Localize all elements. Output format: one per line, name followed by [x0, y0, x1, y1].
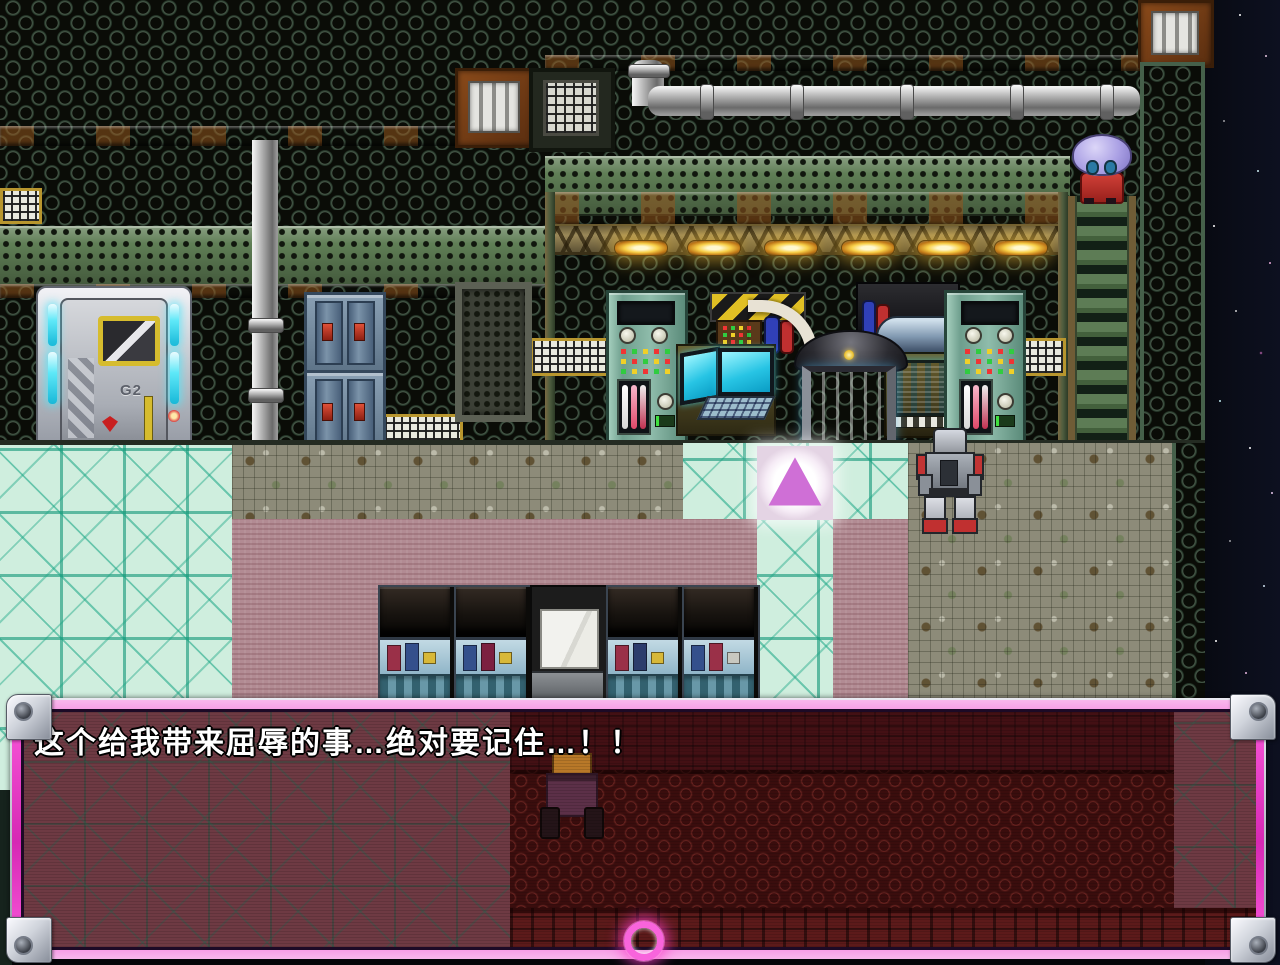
bracket-hole-icon	[14, 936, 33, 955]
vending-machine	[606, 585, 684, 704]
steam-pipe	[648, 86, 1140, 116]
door-light-right	[170, 304, 179, 346]
garage-pillar	[545, 192, 555, 458]
ceiling-light	[917, 240, 971, 256]
vending-top	[456, 587, 526, 637]
door-light-right	[170, 352, 179, 404]
robot-boot	[952, 518, 978, 534]
girl-hair	[1072, 134, 1132, 176]
cabinet-gauge	[965, 327, 982, 344]
mesh-panel	[1140, 62, 1205, 458]
girl-shoe	[1084, 198, 1094, 204]
wall-grate	[0, 188, 42, 224]
sci-fi-door: G2	[36, 286, 192, 462]
specimen-tubes	[959, 379, 993, 435]
robot-npc	[916, 428, 980, 532]
dialog-honeycomb-wall	[510, 770, 1174, 912]
pipe-coupling	[248, 388, 284, 403]
door-yellow-strip	[144, 396, 153, 442]
vending-item	[633, 643, 647, 671]
robot-boot	[922, 518, 948, 534]
robot-arm	[967, 474, 982, 496]
vending-item	[691, 645, 705, 671]
tube	[982, 385, 988, 429]
tube	[640, 385, 646, 429]
crate-handle	[322, 403, 333, 421]
cabinet-gauge	[651, 327, 668, 344]
cabinet-leds	[621, 349, 626, 354]
vent-box	[455, 68, 535, 148]
garage-beam	[545, 192, 1065, 226]
corner-bracket-tl	[6, 694, 52, 740]
dialog-brick-band	[510, 908, 1256, 947]
teleport-triangle-icon	[765, 454, 825, 510]
door-light-left	[48, 304, 57, 346]
vending-top	[380, 587, 450, 637]
pipe-coupling	[1100, 84, 1114, 120]
reactor-tank	[802, 366, 896, 446]
cart-wheel	[584, 807, 604, 839]
vending-item	[405, 643, 419, 671]
ladder	[1068, 196, 1136, 458]
vending-shelf	[684, 674, 754, 700]
dialogue-content: 这个给我带来屈辱的事…绝对要记住…！！	[24, 712, 1256, 947]
dialogue-frame: 这个给我带来屈辱的事…绝对要记住…！！	[12, 700, 1264, 959]
cabinet-gauge	[657, 393, 674, 410]
vending-item	[615, 645, 629, 671]
vending-item	[481, 643, 495, 671]
floor-mauve	[833, 519, 908, 700]
cart-wheel	[540, 807, 560, 839]
vending-machine	[378, 585, 456, 704]
tube	[622, 385, 628, 429]
crate-handle	[354, 323, 365, 341]
tube	[973, 385, 979, 429]
cabinet-gauge	[619, 327, 636, 344]
door-hatch-stripes	[68, 358, 94, 438]
bracket-hole-icon	[14, 702, 33, 721]
vending-glass	[456, 637, 526, 701]
ceiling-light	[764, 240, 818, 256]
corner-bracket-bl	[6, 917, 52, 963]
cabinet-switch	[995, 415, 1015, 427]
cabinet-leds	[965, 349, 970, 354]
whiteboard-base	[532, 671, 603, 700]
cabinet-gauge	[997, 393, 1014, 410]
vent-grille	[1151, 11, 1199, 55]
bracket-hole-icon	[1249, 936, 1268, 955]
door-panel: G2	[60, 298, 168, 452]
teleport-pad	[757, 446, 833, 520]
cabinet-screen	[617, 301, 675, 325]
grate-grille	[543, 80, 599, 136]
girl-eye	[1104, 160, 1117, 175]
keyboard	[697, 396, 776, 420]
pipe-coupling	[628, 64, 670, 78]
ceiling-light	[614, 240, 668, 256]
vending-top	[684, 587, 754, 637]
cabinet-switch	[655, 415, 675, 427]
corner-bracket-tr	[1230, 694, 1276, 740]
vent-box	[1138, 0, 1214, 68]
tube	[631, 385, 637, 429]
grate-box	[529, 68, 615, 152]
pipe-coupling	[1010, 84, 1024, 120]
vending-glass	[684, 637, 754, 701]
cabinet-gauge	[997, 327, 1014, 344]
door-label: G2	[120, 382, 142, 399]
vending-machine	[682, 585, 760, 704]
ceiling-light	[841, 240, 895, 256]
cabinet-screen	[961, 301, 1019, 325]
continue-indicator[interactable]	[624, 921, 664, 961]
mesh-panel	[1172, 443, 1205, 700]
floor-cyan-corridor	[757, 519, 833, 700]
wall-grate	[530, 338, 610, 376]
dialogue-frame-inner: 这个给我带来屈辱的事…绝对要记住…！！	[21, 709, 1255, 950]
riveted-panel	[455, 282, 532, 422]
robot-core	[940, 460, 958, 486]
door-window	[98, 316, 160, 366]
girl-shoe	[1106, 198, 1116, 204]
pipe-coupling	[790, 84, 804, 120]
vending-item	[423, 652, 436, 664]
whiteboard-stand	[530, 585, 609, 704]
crate-handle	[354, 403, 365, 421]
girl-eye	[1086, 160, 1099, 175]
tube	[964, 385, 970, 429]
vending-glass	[380, 637, 450, 701]
door-light-left	[48, 352, 57, 404]
vending-shelf	[608, 674, 678, 700]
game-viewport[interactable]: G2	[0, 0, 1280, 965]
vending-item	[499, 652, 512, 664]
vending-item	[727, 652, 740, 664]
floor-moss	[232, 445, 683, 521]
specimen-tubes	[617, 379, 651, 435]
floor-cyan	[0, 445, 232, 700]
cart-sprite	[540, 753, 600, 841]
crate-handle	[322, 323, 333, 341]
npc-girl	[1072, 134, 1128, 206]
vending-shelf	[456, 674, 526, 700]
bracket-hole-icon	[1249, 702, 1268, 721]
corner-bracket-br	[1230, 917, 1276, 963]
vent-grille	[468, 81, 520, 133]
control-lights	[723, 326, 727, 330]
pipe-coupling	[900, 84, 914, 120]
vending-top	[608, 587, 678, 637]
dialogue-box[interactable]: 这个给我带来屈辱的事…绝对要记住…！！	[10, 698, 1266, 957]
vending-shelf	[380, 674, 450, 700]
door-button	[168, 410, 180, 422]
pipe-coupling	[700, 84, 714, 120]
dialog-floor-tiles	[1174, 712, 1256, 908]
dialogue-text: 这个给我带来屈辱的事…绝对要记住…！！	[34, 718, 642, 762]
ceiling-light	[994, 240, 1048, 256]
vending-item	[651, 652, 664, 664]
vending-item	[387, 645, 401, 671]
tank-light	[844, 350, 854, 360]
door-emblem-icon	[102, 416, 118, 432]
monitor-right	[718, 348, 774, 396]
metal-crate	[304, 292, 386, 374]
computer-desk	[676, 344, 776, 436]
vending-item	[709, 643, 723, 671]
garage-pillar	[1058, 192, 1068, 458]
ceiling-light	[687, 240, 741, 256]
vending-glass	[608, 637, 678, 701]
vending-item	[463, 645, 477, 671]
vending-machine	[454, 585, 532, 704]
pipe-coupling	[248, 318, 284, 333]
whiteboard	[540, 609, 599, 669]
vertical-pipe	[252, 140, 278, 458]
